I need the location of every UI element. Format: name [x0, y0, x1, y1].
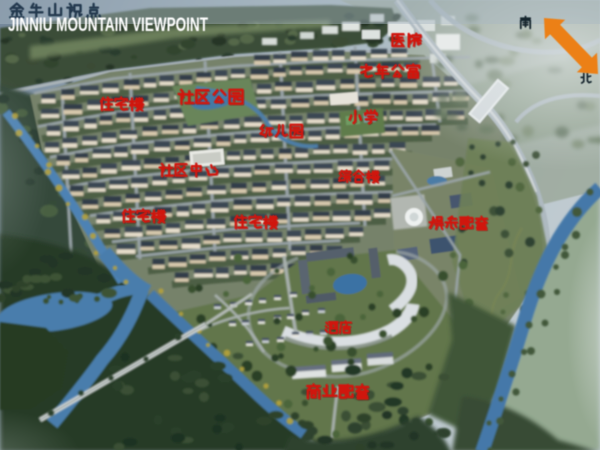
svg-text:JINNIU MOUNTAIN VIEWPOINT: JINNIU MOUNTAIN VIEWPOINT [8, 15, 208, 36]
